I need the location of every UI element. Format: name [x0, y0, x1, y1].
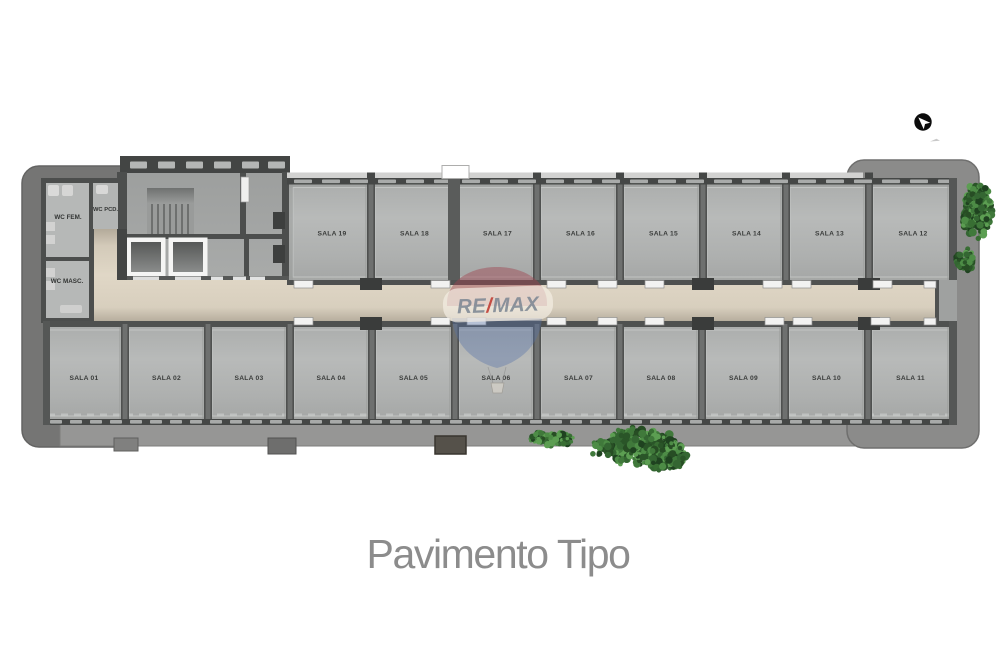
svg-text:WC PCD.: WC PCD. — [93, 207, 119, 213]
svg-text:SALA 11: SALA 11 — [896, 375, 925, 382]
svg-text:SALA 15: SALA 15 — [649, 231, 678, 238]
svg-text:SALA 18: SALA 18 — [400, 231, 429, 238]
svg-text:SALA 03: SALA 03 — [234, 375, 263, 382]
svg-text:SALA 01: SALA 01 — [69, 375, 98, 382]
svg-text:SALA 08: SALA 08 — [646, 375, 675, 382]
svg-text:WC FEM.: WC FEM. — [54, 214, 82, 221]
svg-text:SALA 13: SALA 13 — [815, 231, 844, 238]
svg-text:SALA 10: SALA 10 — [812, 375, 841, 382]
svg-text:SALA 04: SALA 04 — [316, 375, 345, 382]
svg-text:SALA 02: SALA 02 — [152, 375, 181, 382]
svg-text:Pavimento Tipo: Pavimento Tipo — [367, 531, 631, 577]
svg-text:SALA 07: SALA 07 — [564, 375, 593, 382]
svg-text:SALA 06: SALA 06 — [481, 375, 510, 382]
svg-text:RE/MAX: RE/MAX — [457, 293, 541, 319]
svg-text:WC MASC.: WC MASC. — [51, 278, 84, 285]
svg-text:SALA 05: SALA 05 — [399, 375, 428, 382]
svg-text:SALA 19: SALA 19 — [317, 231, 346, 238]
svg-text:SALA 16: SALA 16 — [566, 231, 595, 238]
svg-text:SALA 12: SALA 12 — [898, 231, 927, 238]
svg-text:SALA 17: SALA 17 — [483, 231, 512, 238]
svg-text:SALA 09: SALA 09 — [729, 375, 758, 382]
svg-text:SALA 14: SALA 14 — [732, 231, 761, 238]
